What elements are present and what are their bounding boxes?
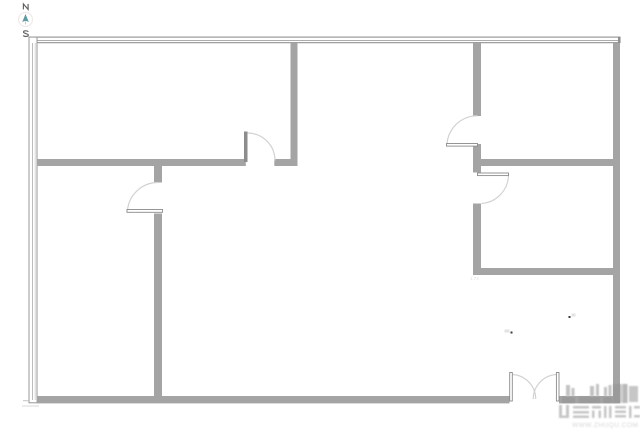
svg-text:WWW.ZHUQU.COM: WWW.ZHUQU.COM	[572, 422, 638, 429]
svg-text:1.74: 1.74	[470, 276, 479, 281]
